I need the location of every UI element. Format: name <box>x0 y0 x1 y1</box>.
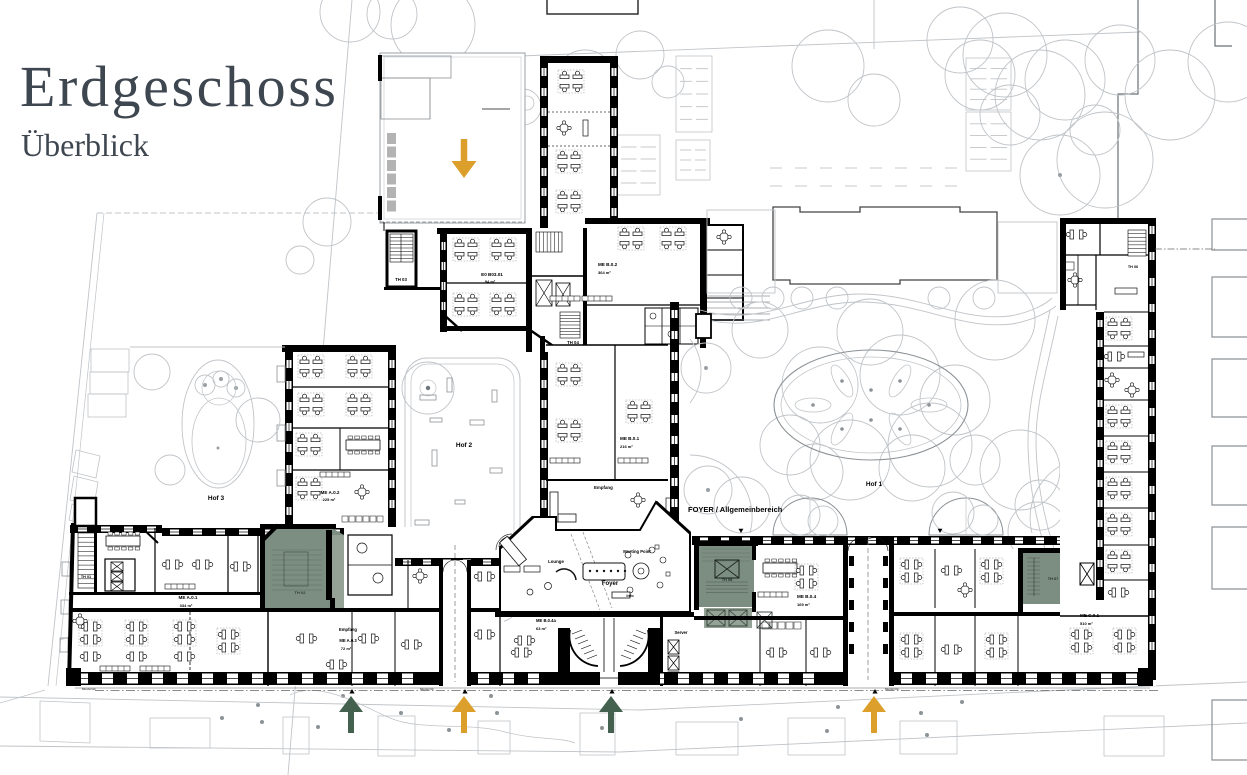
svg-text:216 m²: 216 m² <box>620 444 633 449</box>
svg-text:225 m²: 225 m² <box>323 497 336 502</box>
svg-text:Musterstr.: Musterstr. <box>82 687 97 691</box>
svg-text:E0 B03.01: E0 B03.01 <box>481 272 503 277</box>
svg-text:ME C.0.1: ME C.0.1 <box>1080 613 1100 618</box>
svg-text:169 m²: 169 m² <box>797 602 810 607</box>
svg-text:TH 06: TH 06 <box>1128 265 1138 269</box>
svg-text:Hof 3: Hof 3 <box>208 495 225 502</box>
svg-text:Server: Server <box>674 630 687 635</box>
svg-text:TH 02: TH 02 <box>295 590 307 595</box>
svg-text:ME A.0.3: ME A.0.3 <box>339 638 357 643</box>
svg-text:94 m²: 94 m² <box>485 279 496 284</box>
svg-text:63 m²: 63 m² <box>536 626 547 631</box>
svg-text:Meeting Point: Meeting Point <box>623 549 651 554</box>
svg-text:TH 03: TH 03 <box>395 277 407 282</box>
svg-text:Lounge: Lounge <box>548 559 564 564</box>
svg-text:ME A.0.1: ME A.0.1 <box>179 595 198 600</box>
svg-text:ME B.0.4: ME B.0.4 <box>797 594 817 599</box>
svg-text:Hof 2: Hof 2 <box>456 442 473 449</box>
svg-text:TH 01: TH 01 <box>81 575 91 579</box>
svg-text:72 m²: 72 m² <box>341 646 352 651</box>
svg-text:ME B.0.4a: ME B.0.4a <box>536 618 556 623</box>
svg-text:ME B.0.2: ME B.0.2 <box>598 262 618 267</box>
svg-text:Empfang: Empfang <box>339 627 357 632</box>
svg-text:TH 07: TH 07 <box>1048 576 1059 581</box>
svg-text:FOYER / Allgemeinbereich: FOYER / Allgemeinbereich <box>688 505 783 514</box>
svg-text:Info: Info <box>626 593 634 598</box>
svg-text:Musterstr.: Musterstr. <box>420 687 435 691</box>
svg-text:Musterstr.: Musterstr. <box>885 687 900 691</box>
svg-text:334 m²: 334 m² <box>180 603 193 608</box>
svg-text:510 m²: 510 m² <box>1080 621 1093 626</box>
svg-text:TH 04: TH 04 <box>567 340 579 345</box>
svg-text:Hof 1: Hof 1 <box>866 481 883 488</box>
svg-text:ME A.0.2: ME A.0.2 <box>321 490 340 495</box>
svg-text:ME B.0.1: ME B.0.1 <box>620 436 640 441</box>
svg-text:TH 08: TH 08 <box>722 577 733 582</box>
svg-text:364 m²: 364 m² <box>598 270 611 275</box>
svg-text:Foyer: Foyer <box>602 581 619 587</box>
svg-text:Empfang: Empfang <box>594 485 613 490</box>
